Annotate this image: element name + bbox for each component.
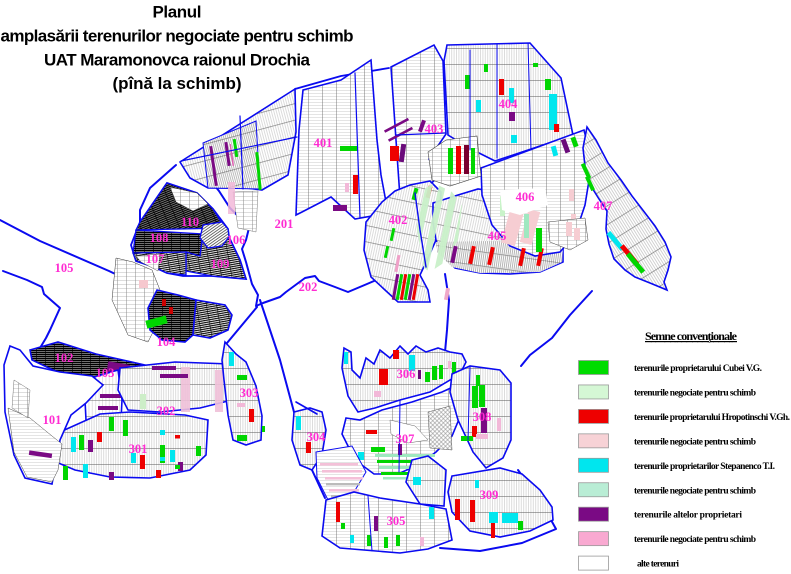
svg-text:407: 407 — [594, 199, 613, 213]
svg-text:Semne convenţionale: Semne convenţionale — [645, 329, 738, 343]
svg-text:alte terenuri: alte terenuri — [637, 560, 679, 570]
svg-text:terenurile proprietarului Cube: terenurile proprietarului Cubei V.G. — [634, 364, 762, 374]
svg-text:305: 305 — [387, 514, 406, 528]
svg-text:401: 401 — [314, 136, 333, 150]
svg-text:terenurile proprietarului Hrop: terenurile proprietarului Hropotinschi V… — [634, 413, 790, 423]
svg-text:308: 308 — [473, 410, 492, 424]
svg-text:202: 202 — [299, 280, 318, 294]
svg-text:amplasării terenurilor negocia: amplasării terenurilor negociate pentru … — [1, 27, 354, 46]
svg-text:402: 402 — [389, 213, 408, 227]
svg-text:306: 306 — [397, 367, 416, 381]
svg-text:405: 405 — [488, 229, 507, 243]
svg-text:101: 101 — [43, 413, 62, 427]
svg-text:103: 103 — [96, 366, 115, 380]
svg-text:terenurile altelor proprietari: terenurile altelor proprietari — [634, 511, 742, 521]
svg-text:110: 110 — [181, 215, 199, 229]
svg-text:106: 106 — [227, 233, 246, 247]
svg-text:terenurile proprietarilor Step: terenurile proprietarilor Stepanenco T.I… — [634, 462, 775, 472]
svg-text:403: 403 — [425, 122, 444, 136]
svg-text:406: 406 — [516, 190, 535, 204]
svg-text:201: 201 — [275, 217, 294, 231]
svg-text:105: 105 — [55, 261, 74, 275]
svg-text:301: 301 — [129, 442, 148, 456]
svg-text:108: 108 — [150, 231, 169, 245]
svg-text:terenurile negociate pentru sc: terenurile negociate pentru schimb — [634, 437, 756, 447]
svg-text:terenurile negociate pentru sc: terenurile negociate pentru schimb — [634, 535, 756, 545]
svg-text:terenurile negociate pentru sc: terenurile negociate pentru schimb — [634, 486, 756, 496]
svg-text:109: 109 — [211, 257, 230, 271]
svg-text:102: 102 — [55, 351, 74, 365]
svg-text:(pînă la schimb): (pînă la schimb) — [113, 74, 242, 93]
svg-text:404: 404 — [499, 97, 519, 111]
svg-text:307: 307 — [396, 432, 415, 446]
svg-text:303: 303 — [240, 386, 259, 400]
svg-text:terenurile negociate pentru sc: terenurile negociate pentru schimb — [634, 388, 756, 398]
svg-text:104: 104 — [157, 335, 177, 349]
svg-text:UAT Maramonovca raionul Drochi: UAT Maramonovca raionul Drochia — [44, 51, 311, 70]
svg-text:309: 309 — [480, 488, 499, 502]
svg-text:Planul: Planul — [153, 3, 202, 22]
svg-text:107: 107 — [146, 252, 165, 266]
svg-text:302: 302 — [157, 404, 176, 418]
svg-text:304: 304 — [307, 430, 327, 444]
